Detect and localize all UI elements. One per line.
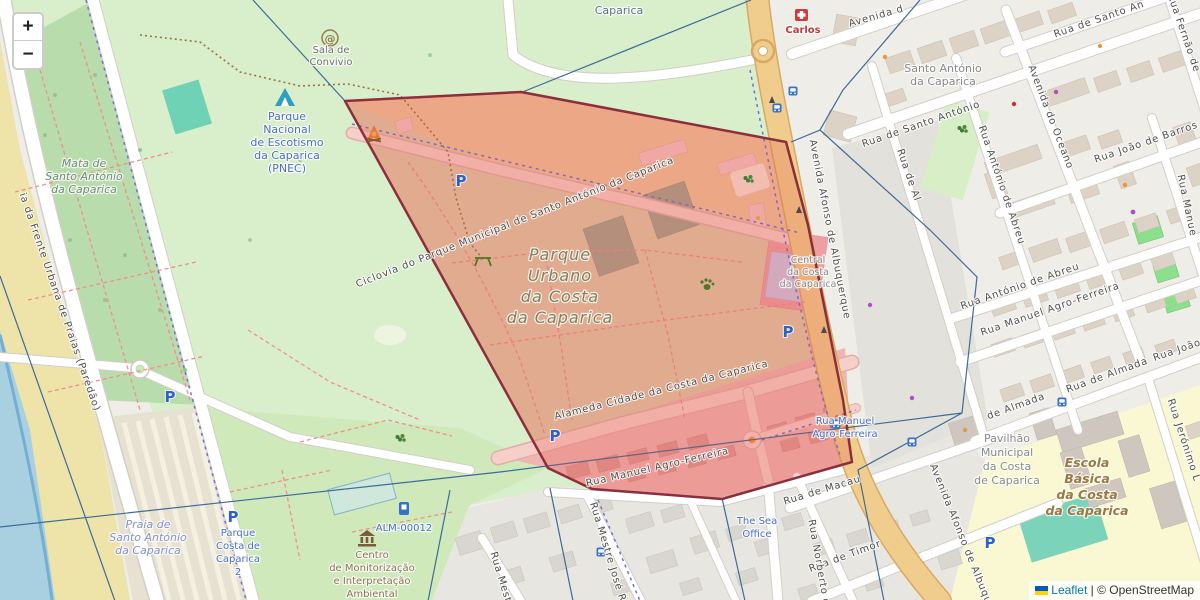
svg-text:da Costa: da Costa	[1056, 487, 1117, 502]
svg-text:(PNEC): (PNEC)	[268, 162, 306, 175]
svg-text:Convivio: Convivio	[310, 57, 353, 68]
svg-text:da Costa: da Costa	[983, 460, 1031, 473]
bus-stop-icon	[908, 438, 917, 447]
parking-icon: P	[456, 172, 467, 190]
pharmacy-icon	[795, 9, 808, 21]
parking-icon: P	[985, 534, 996, 552]
svg-text:da Caparica: da Caparica	[507, 308, 614, 327]
svg-text:de Caparica: de Caparica	[974, 474, 1040, 487]
leaflet-link[interactable]: Leaflet	[1051, 583, 1087, 597]
osm-copyright[interactable]: © OpenStreetMap	[1097, 583, 1194, 597]
svg-text:Office: Office	[742, 529, 771, 540]
place-label-caparica: Caparica	[595, 4, 644, 17]
svg-text:Santo António: Santo António	[109, 531, 187, 544]
svg-text:Parque: Parque	[221, 528, 255, 539]
bus-stop-icon	[789, 87, 798, 96]
parking-icon: P	[228, 508, 239, 526]
parking-icon: P	[165, 388, 176, 406]
svg-text:Mata de: Mata de	[62, 157, 107, 170]
svg-text:Parque: Parque	[529, 245, 591, 264]
svg-text:Ambiental: Ambiental	[346, 589, 397, 600]
svg-text:da Caparica: da Caparica	[780, 279, 837, 290]
svg-text:Urbano: Urbano	[528, 266, 592, 285]
zoom-in-button[interactable]: +	[14, 14, 42, 41]
attribution-separator: |	[1091, 583, 1094, 597]
leaflet-map[interactable]: P P P P P P @	[0, 0, 1200, 600]
svg-text:de Escotismo: de Escotismo	[250, 136, 324, 149]
svg-text:Rua Manuel: Rua Manuel	[816, 416, 875, 427]
parking-icon: P	[550, 427, 561, 445]
svg-text:da Caparica: da Caparica	[254, 149, 320, 162]
svg-text:Nacional: Nacional	[263, 123, 311, 136]
bus-stop-icon	[773, 104, 782, 113]
zoom-control: + −	[12, 12, 44, 70]
parking-icon: P	[783, 323, 794, 341]
svg-text:da Costa: da Costa	[521, 287, 599, 306]
zoom-out-button[interactable]: −	[14, 41, 42, 68]
charging-station-icon	[399, 502, 409, 515]
svg-text:da Caparica: da Caparica	[51, 183, 117, 196]
santo-antonio-label: Santo António da Caparica	[904, 62, 982, 88]
svg-text:Sala de: Sala de	[312, 45, 349, 56]
carlos-label: Carlos	[785, 25, 820, 36]
svg-text:Centro: Centro	[355, 550, 388, 561]
svg-text:Costa de: Costa de	[216, 541, 260, 552]
bus-stop-icon	[1058, 398, 1067, 407]
svg-text:Santo António: Santo António	[904, 62, 982, 75]
svg-text:2: 2	[235, 567, 241, 578]
svg-text:de Monitorização: de Monitorização	[329, 563, 415, 574]
svg-text:Parque: Parque	[268, 110, 306, 123]
svg-text:da Costa: da Costa	[787, 267, 829, 278]
svg-text:@: @	[325, 33, 336, 46]
svg-text:Pavilhão: Pavilhão	[984, 432, 1030, 445]
svg-text:Santo António: Santo António	[45, 170, 123, 183]
svg-text:Municipal: Municipal	[981, 446, 1033, 459]
map-canvas[interactable]: P P P P P P @	[0, 0, 1200, 600]
svg-text:da Caparica: da Caparica	[910, 75, 976, 88]
svg-text:da Caparica: da Caparica	[1045, 503, 1128, 518]
svg-text:Escola: Escola	[1065, 455, 1110, 470]
svg-text:Básica: Básica	[1064, 471, 1110, 486]
svg-text:Central: Central	[791, 255, 826, 266]
ukraine-flag-icon	[1035, 586, 1048, 595]
alm-label: ALM-00012	[376, 523, 432, 534]
svg-text:Praia de: Praia de	[126, 518, 171, 531]
attribution-bar: Leaflet | © OpenStreetMap	[1029, 581, 1200, 600]
sala-convivio-label: Sala de Convivio	[310, 45, 353, 68]
svg-text:Caparica: Caparica	[216, 554, 260, 565]
svg-text:e Interpretação: e Interpretação	[334, 576, 411, 587]
svg-text:The Sea: The Sea	[736, 516, 777, 527]
svg-text:da Caparica: da Caparica	[115, 544, 181, 557]
svg-text:Agro-Ferreira: Agro-Ferreira	[812, 429, 877, 440]
